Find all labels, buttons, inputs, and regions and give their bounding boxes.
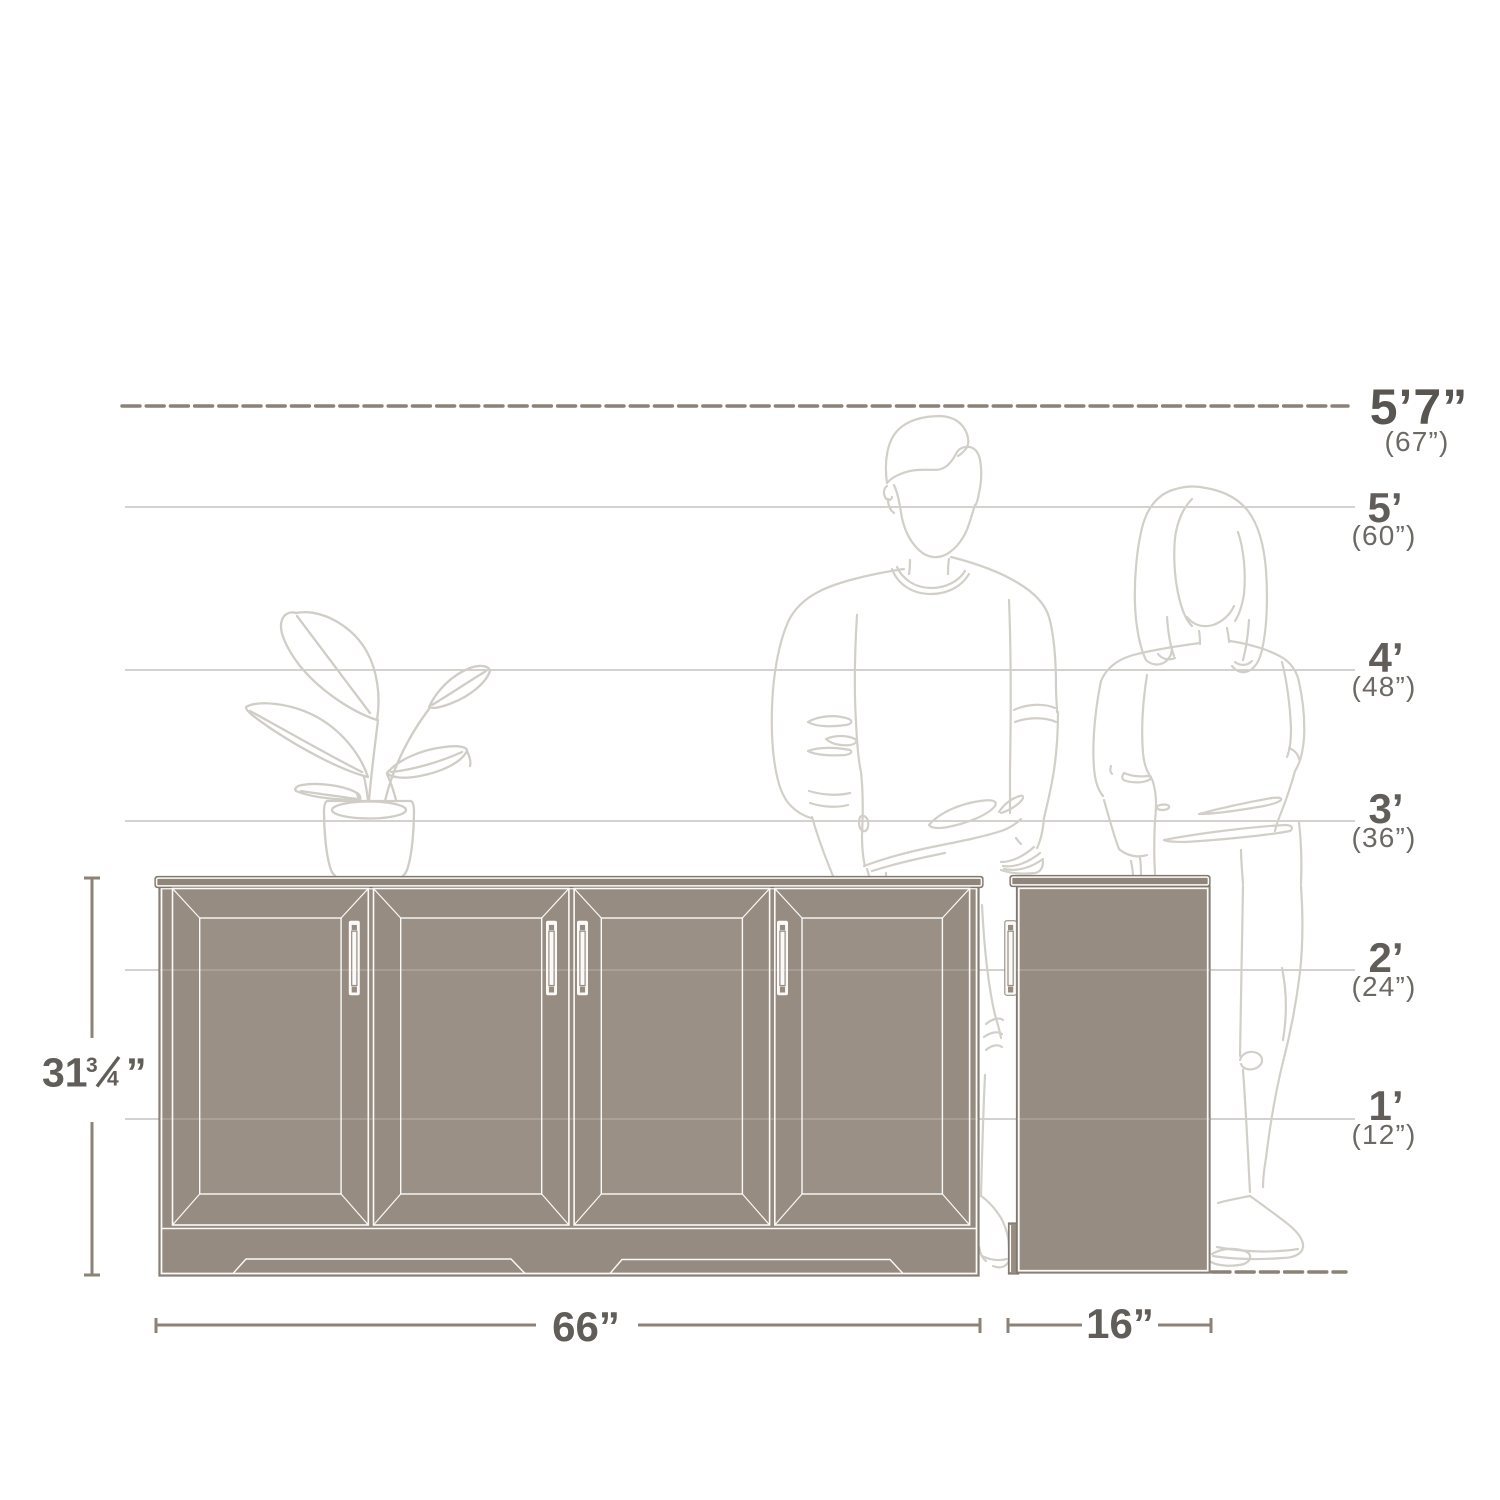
svg-text:4: 4 [107,1068,119,1091]
svg-text:16”: 16” [1086,1300,1154,1347]
svg-text:(60”): (60”) [1351,520,1416,551]
svg-text:66”: 66” [552,1303,620,1350]
svg-text:31: 31 [42,1050,88,1096]
svg-text:(48”): (48”) [1351,671,1416,702]
svg-text:(36”): (36”) [1351,822,1416,853]
svg-text:”: ” [126,1050,147,1096]
svg-text:(24”): (24”) [1351,971,1416,1002]
svg-text:3: 3 [86,1054,98,1077]
svg-text:(12”): (12”) [1351,1119,1416,1150]
svg-text:(67”): (67”) [1384,426,1449,457]
